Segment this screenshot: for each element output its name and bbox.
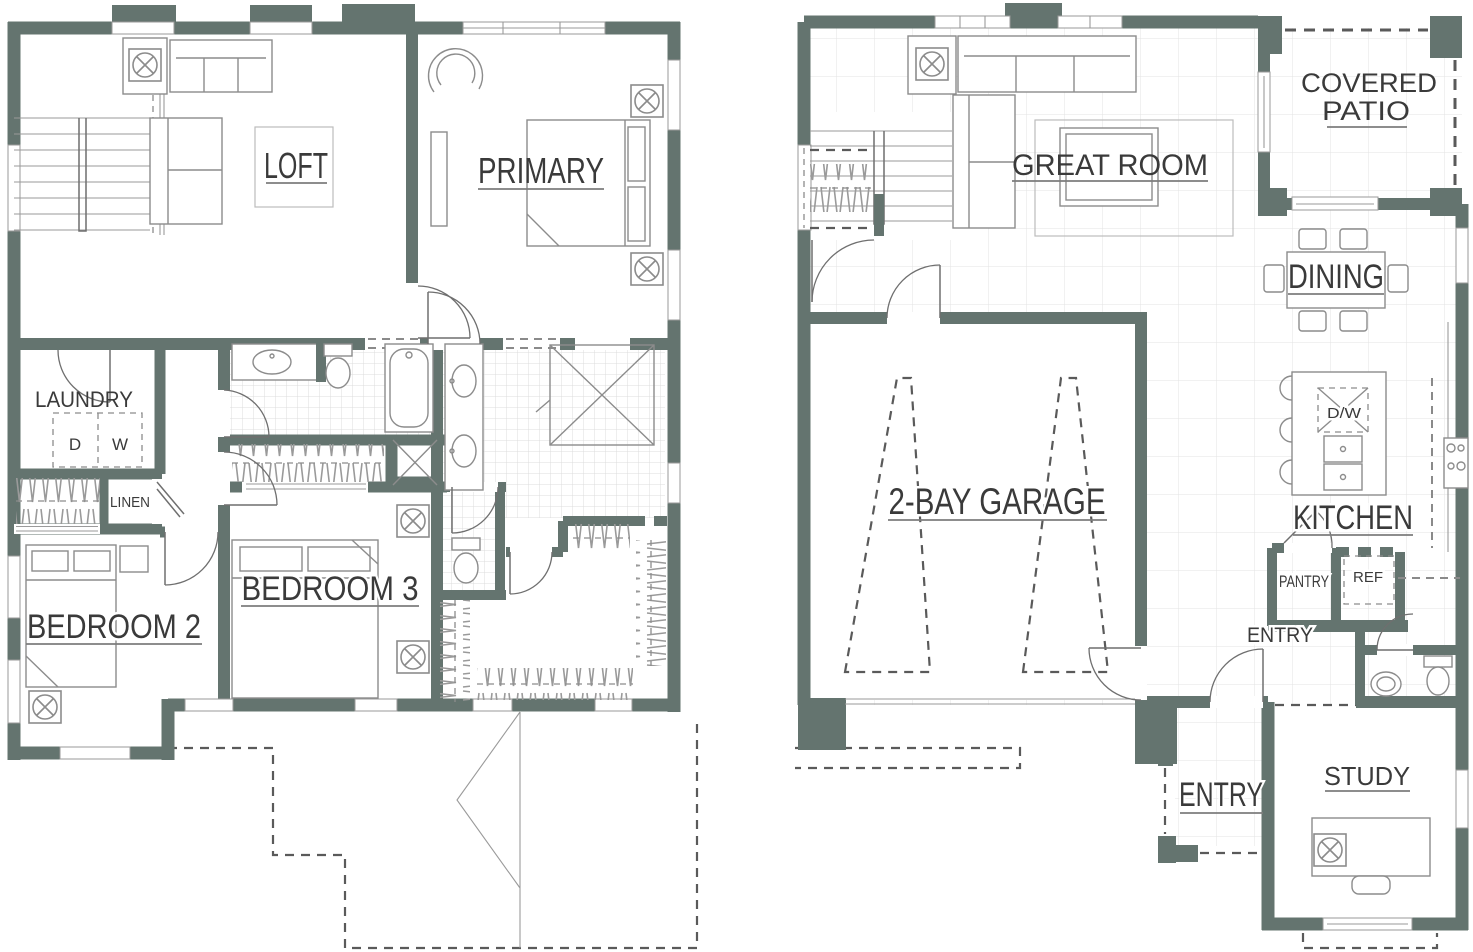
room-label-loft: LOFT bbox=[264, 145, 328, 186]
primary-dresser bbox=[431, 132, 447, 226]
washer-label: W bbox=[112, 435, 128, 454]
toilet-fixture bbox=[1424, 656, 1452, 667]
powder-sink bbox=[1371, 672, 1401, 696]
entry-hall-label: ENTRY bbox=[1247, 624, 1313, 647]
dryer-label: D bbox=[69, 435, 81, 454]
room-label-linen: LINEN bbox=[110, 494, 150, 511]
driveway-dashed bbox=[795, 748, 1020, 768]
second-floor-plan: LOFT PRIMARY LAUNDRY D W LINEN BEDROOM 2… bbox=[8, 4, 697, 948]
room-label-covered-patio-2: PATIO bbox=[1322, 96, 1410, 126]
room-label-garage: 2-BAY GARAGE bbox=[889, 481, 1106, 522]
toilet-fixture bbox=[452, 538, 480, 550]
ceiling-fan-icon bbox=[29, 691, 61, 723]
ceiling-fan-icon bbox=[1314, 834, 1346, 866]
bathtub-fixture bbox=[385, 344, 433, 432]
room-label-bedroom2: BEDROOM 2 bbox=[27, 608, 201, 646]
ceiling-fan-icon bbox=[916, 48, 948, 80]
round-chair bbox=[429, 49, 483, 92]
ceiling-fan-icon bbox=[397, 641, 429, 673]
refrigerator-label: REF bbox=[1353, 569, 1383, 586]
room-label-great-room: GREAT ROOM bbox=[1012, 149, 1208, 182]
floor-plan-image: LOFT PRIMARY LAUNDRY D W LINEN BEDROOM 2… bbox=[0, 0, 1473, 952]
room-label-primary: PRIMARY bbox=[478, 150, 604, 191]
room-label-dining: DINING bbox=[1288, 258, 1384, 296]
room-label-kitchen: KITCHEN bbox=[1293, 499, 1413, 537]
kitchen-sink bbox=[1324, 436, 1362, 462]
garage-posts bbox=[798, 698, 1177, 764]
bedroom3-bed bbox=[232, 540, 378, 698]
entry-porch-label: ENTRY bbox=[1179, 776, 1263, 814]
first-floor-plan: GREAT ROOM COVERED PATIO DINING 2-BAY GA… bbox=[795, 3, 1468, 948]
toilet-fixture bbox=[324, 344, 352, 356]
double-vanity bbox=[445, 344, 483, 490]
coat-closet-hangers bbox=[810, 164, 872, 212]
laundry-appliances bbox=[53, 413, 142, 467]
desk-chair bbox=[1352, 876, 1390, 894]
roof-outline-dashed bbox=[168, 718, 697, 948]
ceiling-fan-icon bbox=[129, 49, 161, 81]
room-label-study: STUDY bbox=[1324, 761, 1410, 791]
room-label-bedroom3: BEDROOM 3 bbox=[242, 570, 419, 608]
ceiling-fan-icon bbox=[397, 505, 429, 537]
sofa bbox=[958, 36, 1136, 92]
study-stoop-dashed bbox=[1303, 933, 1437, 948]
vanity-sink bbox=[232, 344, 318, 380]
loft-furniture bbox=[123, 38, 333, 224]
ceiling-fan-icon bbox=[631, 253, 663, 285]
pantry-label: PANTRY bbox=[1279, 572, 1329, 591]
staircase bbox=[14, 84, 164, 235]
room-label-covered-patio: COVERED bbox=[1301, 68, 1437, 98]
primary-bed bbox=[429, 49, 650, 246]
ceiling-fan-icon bbox=[631, 85, 663, 117]
dishwasher-label: D/W bbox=[1327, 405, 1362, 422]
floor-plan-page: LOFT PRIMARY LAUNDRY D W LINEN BEDROOM 2… bbox=[0, 0, 1473, 952]
roof-hip-lines bbox=[457, 712, 520, 948]
room-label-laundry: LAUNDRY bbox=[35, 387, 133, 412]
